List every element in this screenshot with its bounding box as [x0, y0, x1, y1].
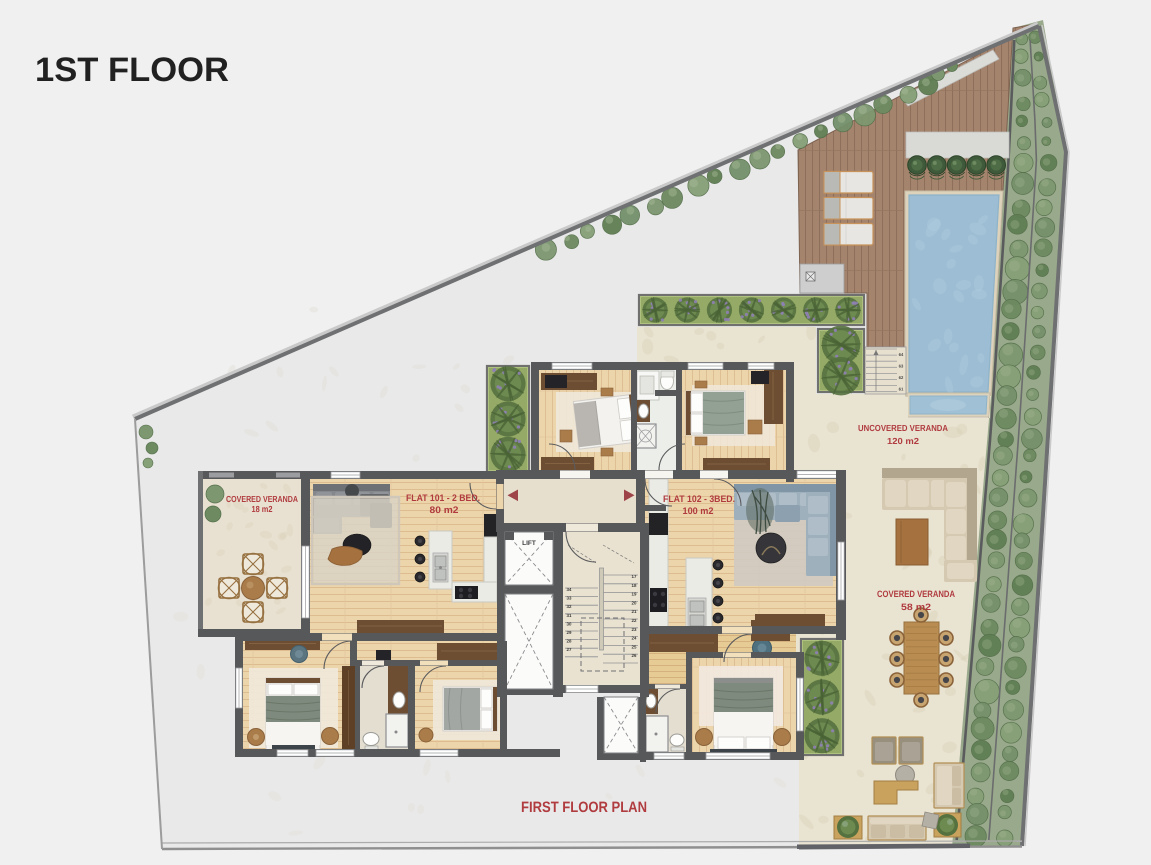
svg-text:LIFT: LIFT — [522, 540, 536, 547]
svg-text:58 m2: 58 m2 — [901, 602, 931, 612]
svg-text:31: 31 — [567, 613, 572, 618]
svg-text:30: 30 — [567, 621, 572, 626]
svg-text:18 m2: 18 m2 — [252, 504, 273, 514]
svg-text:62: 62 — [899, 375, 904, 380]
svg-text:23: 23 — [632, 627, 637, 632]
svg-text:32: 32 — [567, 604, 572, 609]
svg-text:61: 61 — [899, 387, 904, 392]
svg-text:24: 24 — [632, 636, 637, 641]
svg-text:28: 28 — [567, 639, 572, 644]
svg-text:FLAT 101 - 2 BED.: FLAT 101 - 2 BED. — [406, 493, 480, 504]
svg-text:21: 21 — [632, 609, 637, 614]
svg-text:FIRST FLOOR PLAN: FIRST FLOOR PLAN — [521, 799, 647, 816]
svg-text:100 m2: 100 m2 — [683, 506, 714, 517]
svg-text:33: 33 — [567, 596, 572, 601]
svg-text:22: 22 — [632, 618, 637, 623]
svg-text:64: 64 — [899, 352, 904, 357]
svg-text:UNCOVERED VERANDA: UNCOVERED VERANDA — [858, 423, 949, 433]
svg-text:27: 27 — [567, 647, 572, 652]
svg-text:34: 34 — [567, 587, 572, 592]
svg-text:26: 26 — [632, 653, 637, 658]
svg-text:FLAT 102 - 3BED.: FLAT 102 - 3BED. — [663, 494, 735, 505]
svg-text:120 m2: 120 m2 — [887, 436, 919, 446]
svg-text:25: 25 — [632, 644, 637, 649]
svg-text:29: 29 — [567, 630, 572, 635]
svg-text:17: 17 — [632, 574, 637, 579]
svg-text:20: 20 — [632, 600, 637, 605]
svg-text:COVERED VERANDA: COVERED VERANDA — [226, 494, 299, 504]
svg-text:COVERED VERANDA: COVERED VERANDA — [877, 589, 955, 599]
svg-text:80 m2: 80 m2 — [430, 505, 459, 516]
svg-text:1ST FLOOR: 1ST FLOOR — [35, 51, 229, 89]
svg-text:63: 63 — [899, 364, 904, 369]
svg-text:19: 19 — [632, 592, 637, 597]
svg-text:18: 18 — [632, 583, 637, 588]
